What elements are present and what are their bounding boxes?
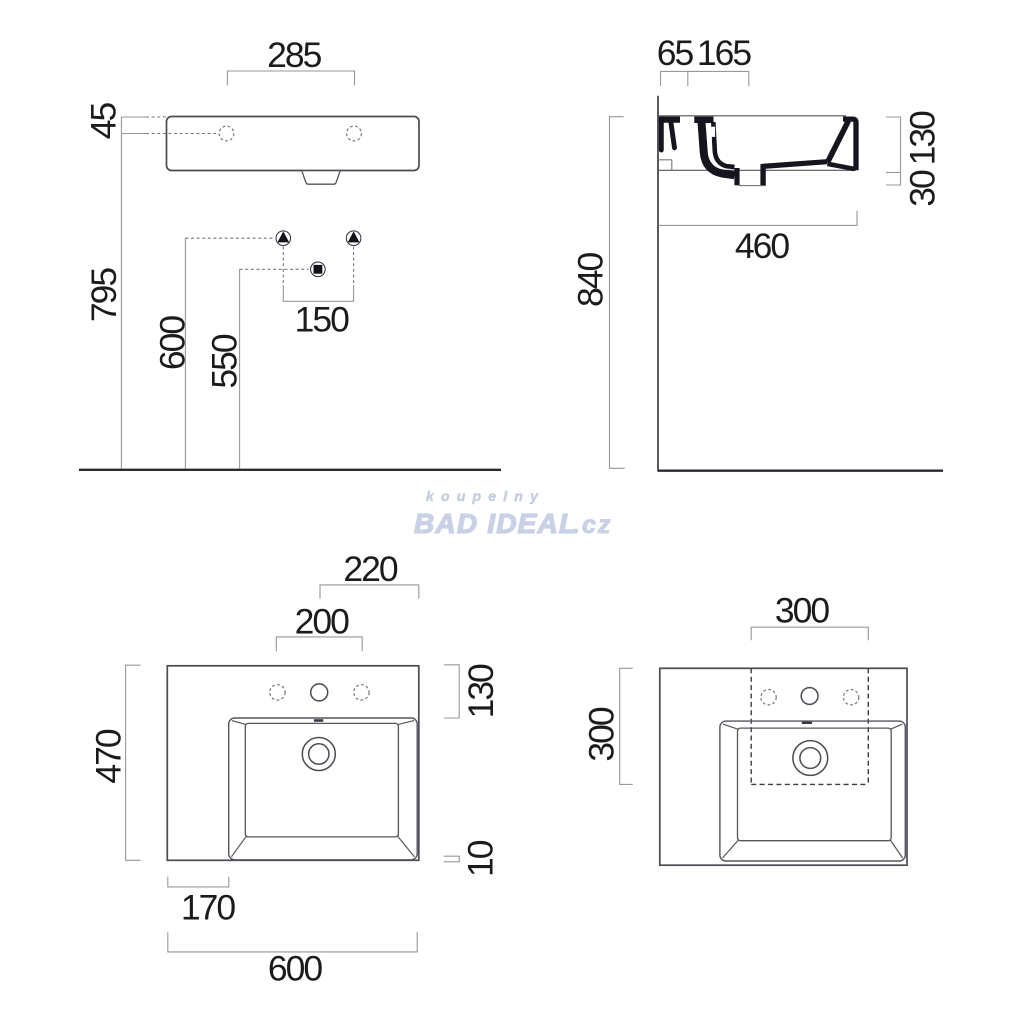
svg-text:840: 840 (571, 253, 611, 307)
svg-text:550: 550 (205, 334, 245, 388)
svg-text:600: 600 (153, 316, 193, 370)
svg-text:285: 285 (267, 35, 321, 75)
svg-text:600: 600 (268, 948, 322, 988)
svg-text:30: 30 (903, 170, 943, 207)
svg-text:165: 165 (697, 33, 751, 73)
svg-text:koupelny: koupelny (426, 488, 545, 504)
svg-text:795: 795 (84, 268, 124, 322)
svg-text:300: 300 (775, 591, 829, 631)
svg-text:130: 130 (903, 111, 943, 165)
svg-text:45: 45 (84, 103, 124, 140)
svg-text:130: 130 (461, 664, 501, 718)
svg-text:150: 150 (295, 300, 349, 340)
svg-text:300: 300 (582, 707, 622, 761)
svg-text:200: 200 (295, 602, 349, 642)
svg-text:460: 460 (735, 226, 789, 266)
svg-text:BAD IDEAL: BAD IDEAL (414, 508, 577, 539)
svg-text:170: 170 (181, 888, 235, 928)
svg-text:220: 220 (343, 549, 397, 589)
svg-text:.cz: .cz (573, 511, 612, 539)
svg-text:65: 65 (657, 33, 694, 73)
svg-text:10: 10 (461, 840, 501, 877)
svg-text:470: 470 (89, 729, 129, 783)
